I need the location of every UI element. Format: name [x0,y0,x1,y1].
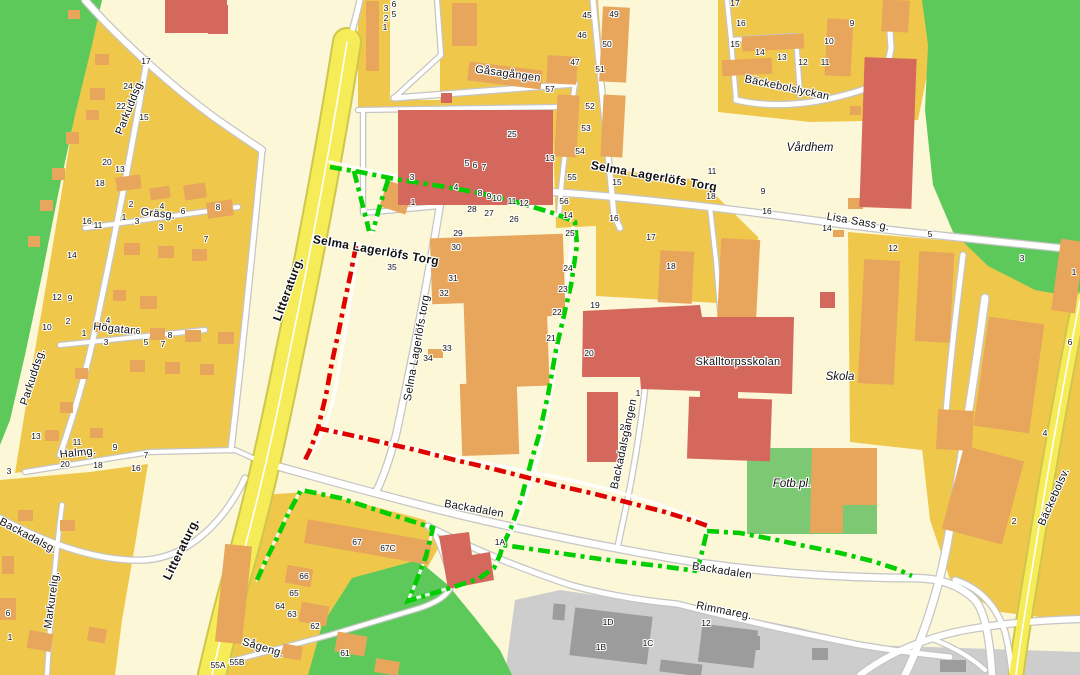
map-viewport[interactable]: Parkuddsg.Parkuddsg.Gräsg.HögatanHalmg.M… [0,0,1080,675]
base-map [0,0,1080,675]
